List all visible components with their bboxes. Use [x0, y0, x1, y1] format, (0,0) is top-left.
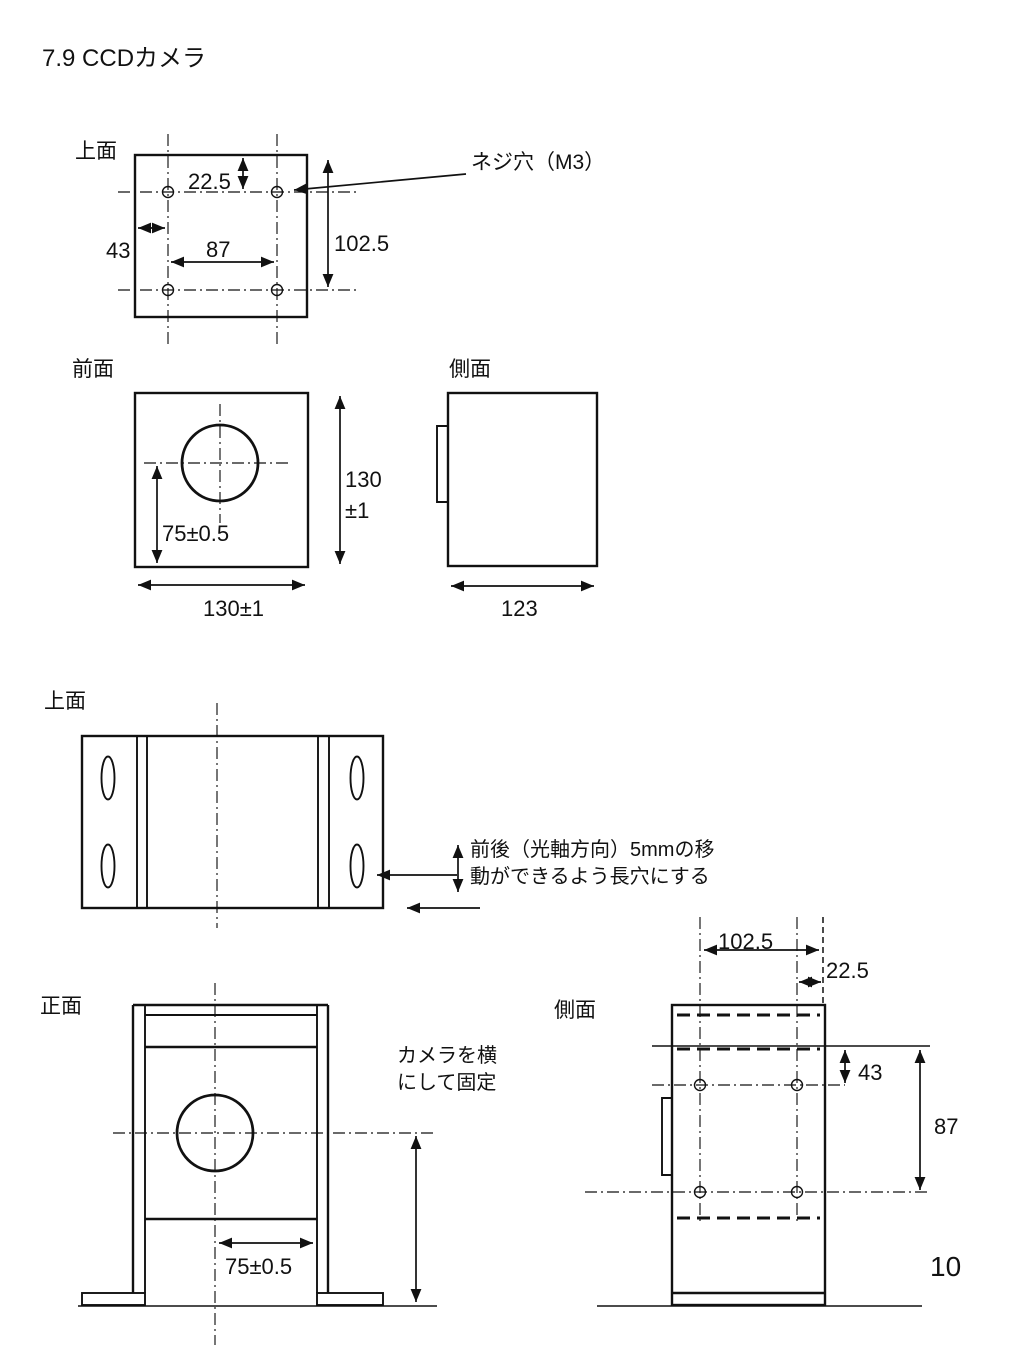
page-title: 7.9 CCDカメラ	[42, 46, 206, 72]
camera-top-view-drawing	[118, 134, 466, 345]
mount-slot	[351, 757, 364, 800]
bracket-side-view-label: 側面	[554, 1000, 596, 1023]
bracket-front-view-label: 正面	[40, 996, 82, 1019]
camera-front-view-drawing	[135, 393, 340, 585]
screw-hole-leader-arrow	[294, 174, 466, 190]
bracket-foot	[82, 1293, 145, 1305]
camera-front-view-label: 前面	[72, 359, 114, 382]
camera-side-view-label: 側面	[449, 359, 491, 382]
dim-75-label: 75±0.5	[162, 522, 229, 546]
bracket-foot	[317, 1293, 383, 1305]
page-number: 10	[930, 1252, 961, 1282]
drawing-canvas	[0, 0, 1024, 1365]
slot-note-line2: 動ができるよう長穴にする	[470, 867, 710, 889]
dim-130-width-label: 130±1	[203, 597, 264, 621]
dim-102-5-side-label: 102.5	[718, 930, 773, 954]
dim-43-label: 43	[106, 239, 130, 263]
bracket-top-view-drawing	[82, 703, 480, 928]
lens-mount-bump	[662, 1098, 672, 1175]
drawing-page: 7.9 CCDカメラ 上面 22.5 ネジ穴（M3） 43 87 102.5 前…	[0, 0, 1024, 1365]
dim-22-5-label: 22.5	[188, 170, 231, 194]
dim-130-label: 130	[345, 468, 382, 492]
dim-130-tol-label: ±1	[345, 499, 369, 523]
mount-slot	[102, 757, 115, 800]
screw-hole-callout: ネジ穴（M3）	[471, 152, 605, 175]
mount-slot	[102, 845, 115, 888]
bracket-top-view-label: 上面	[44, 691, 86, 714]
dim-87-label: 87	[206, 238, 230, 262]
mount-note-line1: カメラを横	[397, 1046, 497, 1068]
slot-note-line1: 前後（光軸方向）5mmの移	[470, 840, 714, 862]
mount-slot	[351, 845, 364, 888]
camera-top-view-label: 上面	[75, 141, 117, 164]
dim-75-bracket-label: 75±0.5	[225, 1255, 292, 1279]
camera-side-view-drawing	[437, 393, 597, 586]
dim-87-side-label: 87	[934, 1115, 958, 1139]
dim-123-label: 123	[501, 597, 538, 621]
bracket-side-view-drawing	[585, 917, 930, 1306]
mount-note-line2: にして固定	[397, 1073, 496, 1095]
dim-22-5-side-label: 22.5	[826, 959, 869, 983]
lens-mount-bump	[437, 426, 448, 502]
bracket-front-view-drawing	[78, 983, 437, 1345]
dim-102-5-label: 102.5	[334, 232, 389, 256]
dim-43-side-label: 43	[858, 1061, 882, 1085]
